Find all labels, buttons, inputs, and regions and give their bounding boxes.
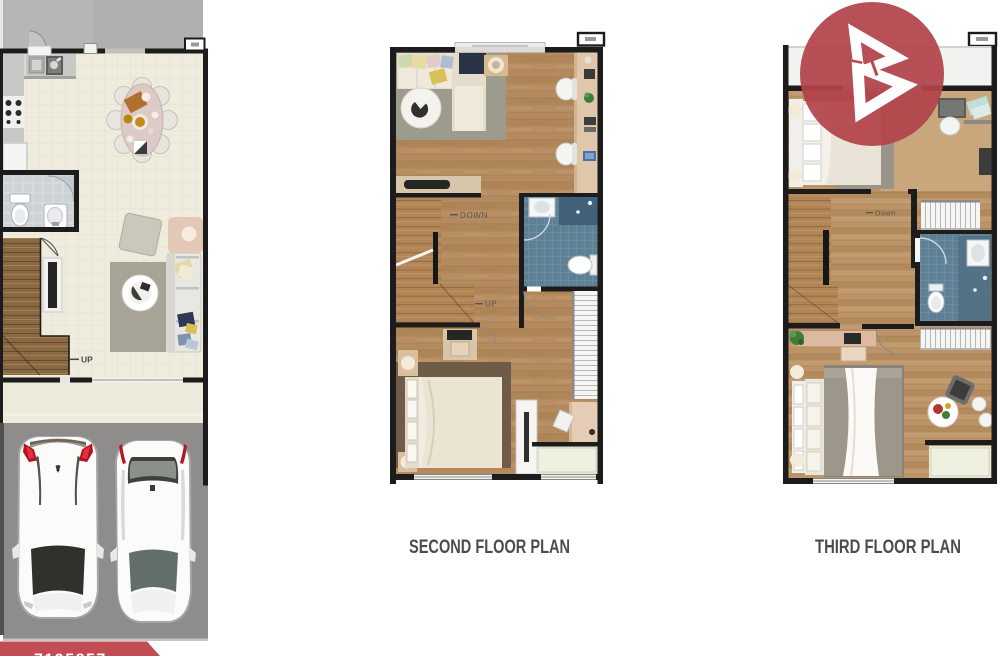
svg-text:THIRD FLOOR PLAN: THIRD FLOOR PLAN (815, 536, 961, 558)
svg-text:UP: UP (81, 355, 93, 365)
svg-text:UP: UP (485, 300, 497, 309)
svg-text:Down: Down (875, 209, 896, 218)
svg-text:7195857: 7195857 (34, 652, 107, 656)
svg-text:DOWN: DOWN (460, 211, 488, 220)
svg-text:SECOND FLOOR PLAN: SECOND FLOOR PLAN (409, 536, 570, 558)
